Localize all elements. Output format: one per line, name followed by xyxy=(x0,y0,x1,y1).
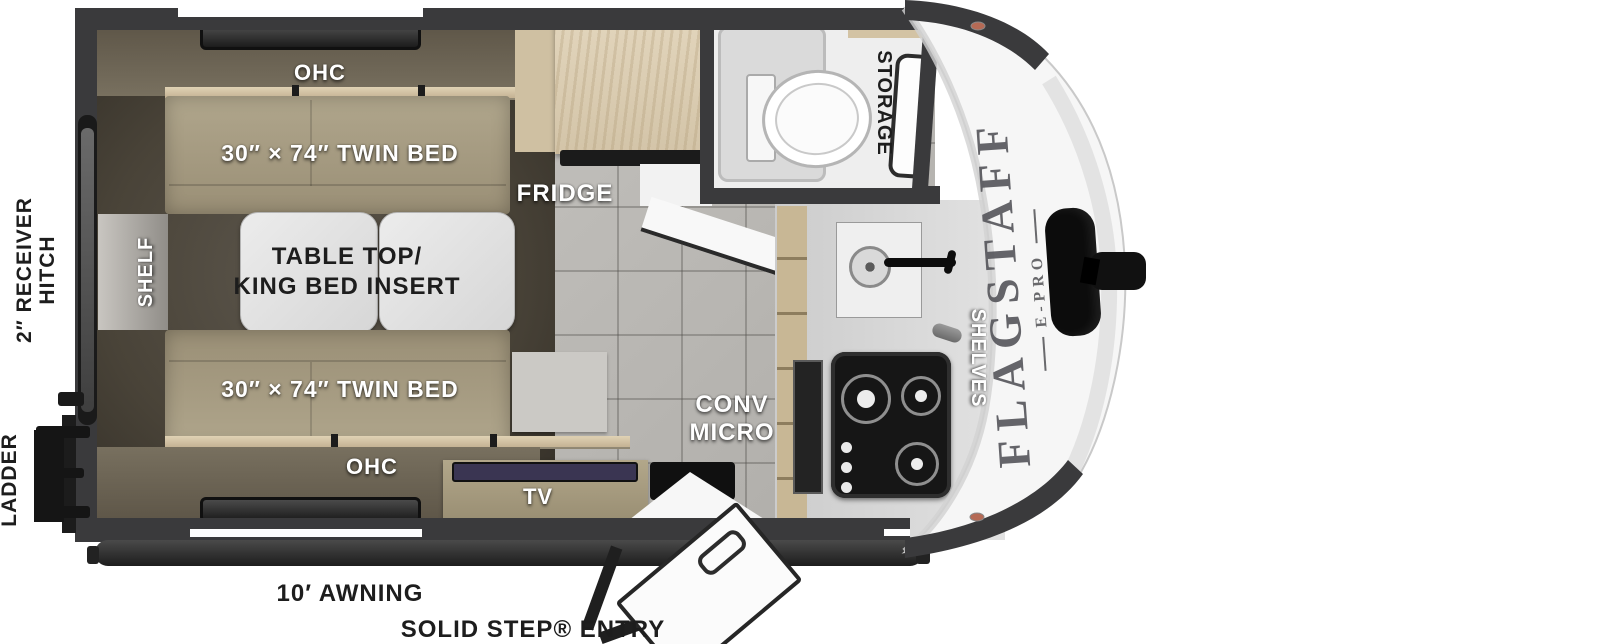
label-conv-line1: CONV xyxy=(662,391,802,419)
label-hitch-line1: 2″ RECEIVER xyxy=(13,197,36,343)
ladder-hook xyxy=(58,392,84,406)
label-hitch-line2: HITCH xyxy=(36,235,59,304)
stove-knob xyxy=(841,442,852,453)
window-left-glass xyxy=(81,128,94,412)
label-ohc-top: OHC xyxy=(270,60,370,86)
label-entry: SOLID STEP® ENTRY xyxy=(383,616,683,644)
label-table-line2: KING BED INSERT xyxy=(217,273,477,301)
label-table-line1: TABLE TOP/ xyxy=(217,243,477,271)
label-shelf: SHELF xyxy=(134,217,158,327)
shelf-bracket xyxy=(331,434,338,448)
marker-light-top xyxy=(971,22,985,30)
ladder-rung-middle xyxy=(36,468,84,478)
label-twin-bed-bottom: 30″ × 74″ TWIN BED xyxy=(195,375,485,403)
window-top xyxy=(178,7,423,17)
hitch-coupler xyxy=(1090,252,1146,290)
floorplan-canvas: OHC 30″ × 74″ TWIN BED SHELF TABLE TOP/ … xyxy=(0,0,1600,644)
bed-seam xyxy=(169,360,506,362)
fridge-cabinet xyxy=(555,12,710,154)
entry-door-handle xyxy=(694,527,749,579)
label-receiver-hitch: 2″ RECEIVER HITCH xyxy=(13,170,59,370)
bed-seam xyxy=(169,184,506,186)
stove-knob xyxy=(841,462,852,473)
side-table xyxy=(512,352,607,432)
label-conv-line2: MICRO xyxy=(662,419,802,447)
ladder-rung-bottom xyxy=(36,506,90,518)
awning-bracket-left xyxy=(87,546,99,564)
label-ohc-bottom: OHC xyxy=(322,454,422,480)
awning-bar xyxy=(95,540,923,566)
label-storage: STORAGE xyxy=(872,28,896,178)
ladder-rung-top xyxy=(36,426,90,438)
sink-bowl xyxy=(849,246,891,288)
nightstand-cabinet xyxy=(515,20,555,152)
label-awning: 10′ AWNING xyxy=(230,580,470,608)
burner-large xyxy=(841,374,891,424)
marker-light-bottom xyxy=(970,513,984,521)
label-tv: TV xyxy=(498,484,578,510)
bathroom-wall-left xyxy=(700,8,714,204)
tv-screen xyxy=(452,462,638,482)
label-ladder: LADDER xyxy=(0,405,22,555)
window-bottom xyxy=(190,529,422,537)
label-twin-bed-top: 30″ × 74″ TWIN BED xyxy=(195,139,485,167)
stove-knob xyxy=(841,482,852,493)
label-fridge: FRIDGE xyxy=(475,180,655,208)
shelf-bracket xyxy=(490,434,497,448)
